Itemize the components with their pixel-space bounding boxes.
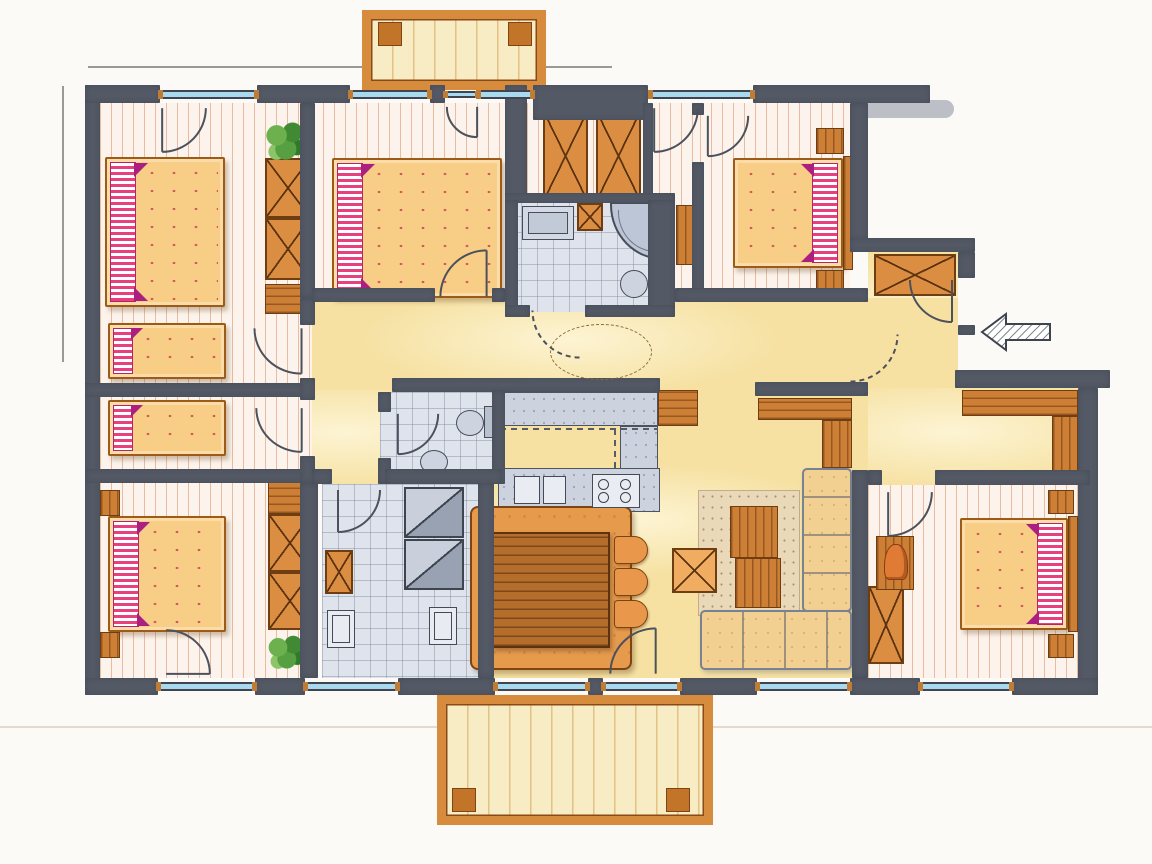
wall-utility [478, 483, 494, 678]
burner-icon [598, 479, 609, 490]
wood-table [492, 532, 610, 648]
chair [614, 568, 648, 596]
pillow-stripes [1037, 523, 1063, 625]
headboard-panel [1068, 516, 1078, 632]
blanket-fold [137, 522, 150, 535]
balcony-post [378, 22, 402, 46]
wall-north [85, 85, 160, 103]
blanket-fold [131, 328, 143, 340]
blanket-fold [1026, 524, 1039, 537]
balcony-door-bedroom-n [444, 104, 480, 140]
wall-interior [492, 288, 505, 302]
x-cabinet [325, 550, 353, 594]
wall-utility [385, 469, 502, 484]
tall-wood-cabinet [658, 390, 698, 426]
window [603, 682, 680, 691]
wall-bathroom-west [505, 200, 518, 312]
corner-bench [700, 610, 852, 670]
wall-interior [692, 162, 704, 298]
wall-north [257, 85, 350, 103]
wall-interior [312, 288, 435, 302]
garden-door-bedroom-sw [162, 626, 214, 678]
upper-cabinet-dashline [614, 430, 616, 468]
wall-interior [300, 298, 315, 325]
wall-utility [312, 469, 332, 484]
single-bed [108, 323, 226, 379]
door-bedroom-n [436, 246, 491, 301]
wall-east-upper [850, 103, 868, 240]
wall-interior [300, 483, 318, 678]
service-shaft [577, 203, 603, 231]
floor-plan [0, 0, 1152, 864]
double-bed [960, 518, 1068, 630]
window [495, 682, 588, 691]
duvet-dots [141, 164, 218, 300]
wall-wc [378, 392, 391, 412]
nightstand [100, 490, 120, 516]
cooktop [592, 474, 640, 508]
wall-bathroom-south [585, 305, 675, 317]
window [478, 90, 533, 99]
entrance-door [906, 276, 956, 326]
window [920, 682, 1012, 691]
sink-drainer [543, 476, 566, 504]
washer [404, 487, 464, 538]
balcony-post [508, 22, 532, 46]
burner-icon [620, 479, 631, 490]
pillow-stripes [113, 521, 139, 627]
blanket-fold [361, 164, 375, 178]
door-bedroom-ne [704, 112, 752, 160]
nightstand [816, 128, 844, 154]
wall-north [533, 85, 648, 120]
nightstand [1048, 490, 1074, 514]
vanity-sink [522, 206, 574, 240]
wardrobe [596, 112, 641, 200]
toilet-bowl [620, 270, 648, 298]
base-cabinet [429, 607, 457, 645]
pillow-stripes [113, 328, 133, 374]
mid-counter [620, 426, 658, 470]
blanket-fold [137, 613, 150, 626]
wall-bathroom-east [648, 200, 675, 312]
vase-icon [884, 544, 908, 580]
sideboard [758, 398, 852, 420]
burner-icon [620, 492, 631, 503]
blanket-fold [134, 163, 148, 177]
window [158, 682, 255, 691]
window [160, 90, 257, 99]
pillow-stripes [110, 162, 136, 302]
wall-interior [505, 85, 527, 200]
terrace-post [666, 788, 690, 812]
single-bed [108, 400, 226, 456]
door-bedroom-w-small [252, 404, 306, 456]
wall-interior [392, 378, 660, 392]
door-bedroom-se [884, 488, 936, 540]
stool [672, 548, 717, 593]
sink-basin [514, 476, 540, 504]
dashed-opening-hall [846, 330, 902, 386]
wall-bathroom-south [505, 305, 530, 317]
door-bedroom-nw [250, 324, 306, 378]
wall-interior [868, 470, 882, 485]
side-table [730, 506, 778, 558]
pillow-stripes [113, 405, 133, 451]
window-door-swing [158, 104, 210, 156]
wall-south [398, 678, 495, 695]
wall-interior [675, 288, 868, 302]
wall-east [1078, 388, 1098, 695]
terrace-door [606, 624, 660, 678]
door-utility [334, 486, 384, 536]
blanket-fold [1026, 611, 1039, 624]
wardrobe [543, 112, 588, 200]
wall-south [1012, 678, 1098, 695]
base-cabinet [327, 610, 355, 648]
dimension-line-left [62, 86, 64, 362]
wall-entry-east [958, 325, 975, 335]
upper-cabinet-dashline [500, 428, 658, 430]
duvet-dots [967, 525, 1032, 623]
wall-bench [962, 390, 1078, 416]
wall-bench [1052, 416, 1078, 472]
duvet-dots [740, 165, 807, 261]
shoe-bench [265, 284, 305, 314]
toilet-bowl [456, 410, 484, 436]
sideboard [822, 420, 852, 468]
window [445, 91, 478, 98]
chair [614, 536, 648, 564]
blanket-fold [131, 405, 143, 417]
blanket-fold [801, 164, 814, 177]
wall-wing-north [955, 370, 1110, 388]
wardrobe [868, 586, 904, 664]
double-bed [108, 516, 226, 632]
wall-interior [935, 470, 1090, 485]
wall-south [255, 678, 305, 695]
pillow-stripes [812, 163, 838, 263]
wall-south [85, 678, 158, 695]
wall-south [850, 678, 920, 695]
entrance-arrow-icon [980, 308, 1052, 356]
burner-icon [598, 492, 609, 503]
wall-north [753, 85, 930, 103]
upper-counter [498, 392, 658, 426]
nightstand [1048, 634, 1074, 658]
double-bed [733, 158, 843, 268]
window [305, 682, 398, 691]
window [650, 90, 753, 99]
wall-interior [852, 470, 868, 678]
duvet-dots [137, 407, 219, 449]
window [350, 90, 430, 99]
blanket-fold [801, 249, 814, 262]
wall-interior [85, 469, 315, 483]
wall-interior [300, 103, 315, 298]
garden-door-north [650, 104, 702, 156]
wall-interior [300, 378, 315, 400]
double-bed [105, 157, 225, 307]
blanket-fold [134, 287, 148, 301]
duvet-dots [144, 523, 219, 625]
side-table [735, 558, 781, 608]
door-bathroom [528, 306, 584, 362]
wall-entry-east [958, 252, 975, 278]
wall-south [680, 678, 757, 695]
duvet-dots [137, 330, 219, 372]
corner-bench [802, 468, 852, 612]
pillow-stripes [337, 163, 363, 293]
nightstand [100, 632, 120, 658]
wall-interior [85, 383, 315, 397]
terrace-post [452, 788, 476, 812]
door-wc [394, 410, 442, 458]
dryer [404, 539, 464, 590]
wall-entry-north [850, 238, 975, 252]
window [757, 682, 850, 691]
